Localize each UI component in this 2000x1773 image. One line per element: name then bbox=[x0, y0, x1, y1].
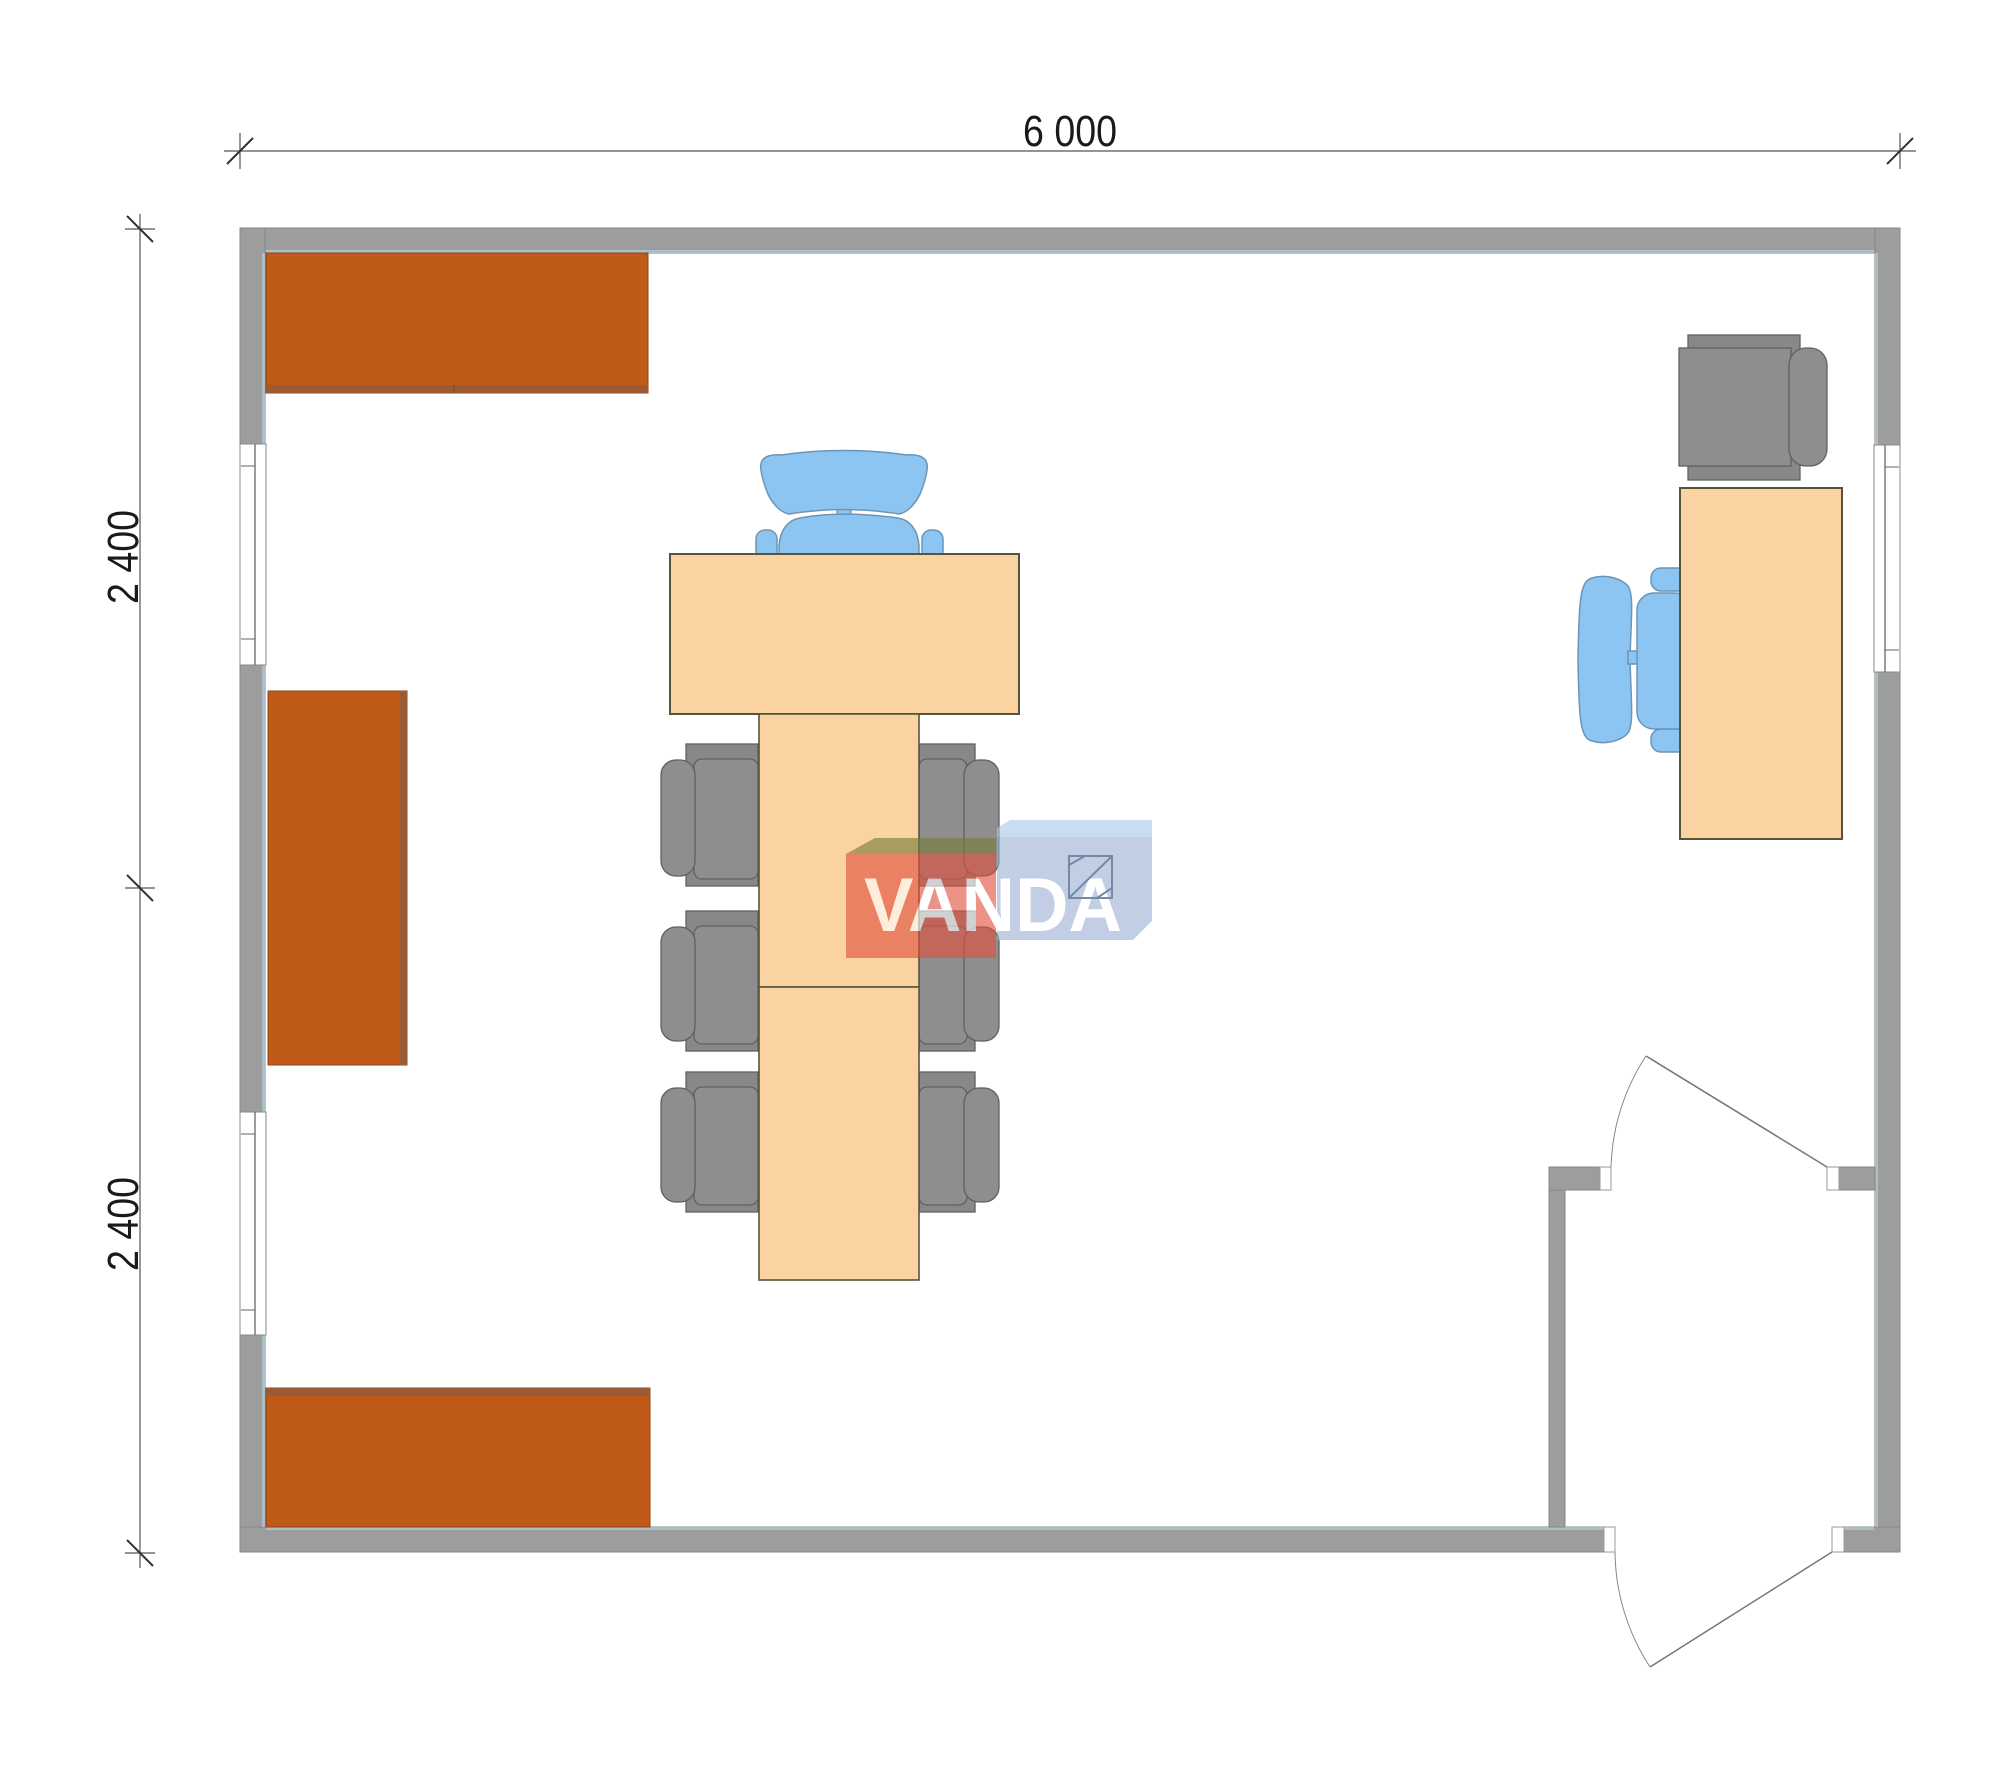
svg-text:2 400: 2 400 bbox=[99, 1177, 148, 1271]
svg-text:VANDA: VANDA bbox=[864, 863, 1122, 948]
svg-text:2 400: 2 400 bbox=[99, 510, 148, 604]
svg-text:6 000: 6 000 bbox=[1023, 107, 1117, 156]
